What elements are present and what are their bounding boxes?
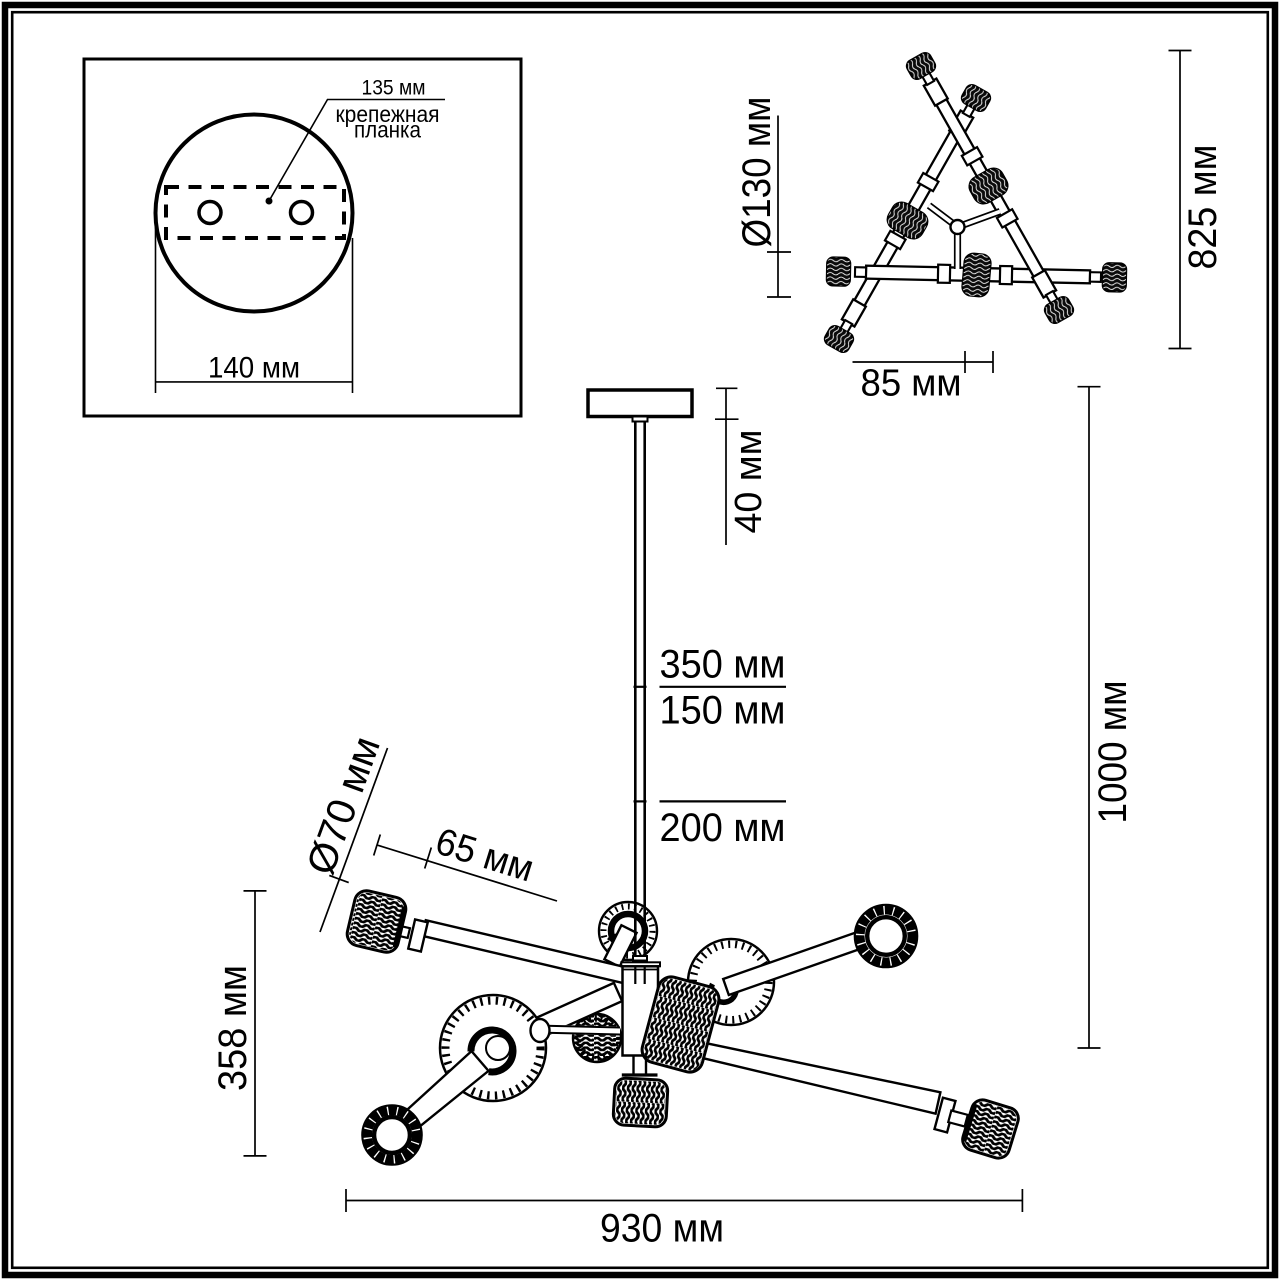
svg-text:825 мм: 825 мм: [1181, 145, 1225, 270]
svg-text:358 мм: 358 мм: [211, 965, 255, 1091]
svg-text:350 мм: 350 мм: [660, 643, 786, 687]
svg-text:930 мм: 930 мм: [600, 1207, 724, 1251]
svg-text:Ø130 мм: Ø130 мм: [735, 97, 779, 248]
svg-text:135 мм: 135 мм: [362, 77, 426, 100]
svg-text:200 мм: 200 мм: [660, 806, 786, 850]
svg-text:планка: планка: [354, 117, 421, 143]
svg-text:1000 мм: 1000 мм: [1091, 681, 1135, 824]
svg-text:40 мм: 40 мм: [728, 430, 770, 534]
svg-text:150 мм: 150 мм: [660, 689, 786, 733]
svg-text:85 мм: 85 мм: [861, 363, 962, 405]
svg-text:140 мм: 140 мм: [208, 352, 300, 385]
